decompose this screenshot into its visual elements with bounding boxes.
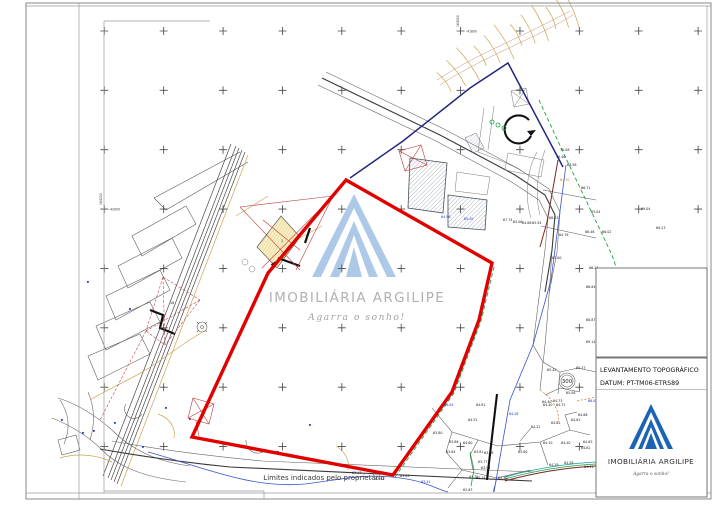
terrain-squiggles [60, 330, 596, 470]
road-hatch-tick [484, 35, 500, 63]
building-hatched-1 [408, 158, 447, 213]
grid-cross [338, 383, 346, 391]
green-limit-2 [539, 100, 616, 267]
elevation-label: 64.72 [556, 403, 565, 407]
parcel-number: 16 [170, 301, 174, 305]
elevation-label: 65.94 [532, 221, 541, 225]
grid-cross [397, 27, 405, 35]
coord-top-vertical: 164300 [456, 15, 460, 27]
road-hatch-tick [531, 5, 548, 41]
elevation-label: 64.41 [584, 465, 593, 469]
elevation-label: 64.28 [549, 463, 558, 467]
elevation-label: 62.63 [463, 488, 472, 492]
road-hatch-tick [555, 0, 568, 28]
grid-cross [160, 205, 168, 213]
elevation-label: 64.04 [444, 403, 453, 407]
tan-road [437, 0, 579, 92]
title-block-tagline: Agarra o sonho! [632, 472, 669, 477]
grid-cross [516, 264, 524, 272]
building-number: 1 [281, 239, 283, 243]
elevation-label: 68.58 [567, 163, 576, 167]
grid-cross [457, 27, 465, 35]
grid-cross [219, 264, 227, 272]
grid-cross [516, 205, 524, 213]
grid-cross [397, 383, 405, 391]
elevation-label: 63.86 [449, 440, 458, 444]
grid-cross [694, 146, 702, 154]
grid-cross [278, 27, 286, 35]
elevation-label: 64.10 [543, 441, 552, 445]
grid-cross [457, 264, 465, 272]
grid-cross [160, 146, 168, 154]
elevation-label: 64.82 [581, 446, 590, 450]
elevation-label: 64.22 [531, 425, 540, 429]
grid-cross [219, 324, 227, 332]
grid-cross [635, 27, 643, 35]
grid-cross [457, 324, 465, 332]
elevation-label: 65.37 [576, 366, 585, 370]
station-300: 300 [559, 373, 575, 389]
elevation-label: 63.80 [433, 431, 442, 435]
elevation-label: 64.26 [509, 412, 518, 416]
station-300-label: 300 [562, 379, 573, 385]
elevation-label: 63.58 [484, 451, 493, 455]
grid-cross [457, 383, 465, 391]
grid-cross [160, 27, 168, 35]
elevation-label: 64.98 [441, 215, 450, 219]
grid-cross [278, 86, 286, 94]
elevation-label: 69.04 [641, 207, 650, 211]
grid-cross [338, 86, 346, 94]
elevation-label: 64.70 [560, 178, 569, 182]
grid-cross [516, 324, 524, 332]
elevation-label: 65.08 [566, 391, 575, 395]
elevation-label: 63.63 [400, 474, 409, 478]
grid-cross [219, 146, 227, 154]
elevation-label: 64.24 [476, 476, 485, 480]
doc-type-label: LEVANTAMENTO TOPOGRÁFICO [600, 365, 699, 374]
grid-cross [694, 27, 702, 35]
elevation-label: 63.84 [446, 450, 455, 454]
elevation-label: 69.23 [656, 226, 665, 230]
grid-cross [278, 205, 286, 213]
grid-cross [219, 383, 227, 391]
terraced-parcels [58, 152, 248, 455]
grid-cross [219, 86, 227, 94]
elevation-label: 67.00 [552, 256, 561, 260]
roundabout-arc [505, 115, 536, 143]
grid-cross [516, 383, 524, 391]
elevation-label: 66.46 [585, 230, 594, 234]
road-hatch-tick [494, 25, 514, 60]
elevation-label: 63.81 [474, 450, 483, 454]
grid-cross [575, 383, 583, 391]
coord-top-horizontal: -41800 [466, 30, 477, 34]
grid-cross [397, 324, 405, 332]
grid-cross [575, 86, 583, 94]
grid-cross [278, 383, 286, 391]
elevation-label: 69.14 [586, 340, 595, 344]
elevation-label: 63.94 [481, 466, 490, 470]
elevation-label: 67.74 [503, 218, 512, 222]
coord-left-horizontal: -42000 [109, 208, 120, 212]
elevation-label: 63.80 [518, 450, 527, 454]
grid-cross [575, 146, 583, 154]
elevation-label: 68.87 [586, 318, 595, 322]
grid-cross [338, 205, 346, 213]
elevation-label: 64.62 [551, 421, 560, 425]
datum-label: DATUM: PT-TM06-ETRS89 [600, 380, 679, 387]
elevation-label: 63.40 [498, 476, 507, 480]
elevation-label: 64.40 [543, 403, 552, 407]
grid-cross [338, 443, 346, 451]
elevation-label: 64.52 [468, 418, 477, 422]
elevation-label: 65.20 [464, 217, 473, 221]
grid-cross [516, 146, 524, 154]
grid-cross [338, 146, 346, 154]
title-block: LEVANTAMENTO TOPOGRÁFICO DATUM: PT-TM06-… [596, 268, 707, 497]
grid-cross [160, 383, 168, 391]
grid-cross [160, 86, 168, 94]
watermark-brand: IMOBILIÁRIA ARGILIPE [269, 289, 445, 306]
grid-cross [278, 443, 286, 451]
grid-cross [219, 27, 227, 35]
grid-cross [397, 86, 405, 94]
grid-cross [694, 205, 702, 213]
elevation-label: 65.42 [547, 368, 556, 372]
elevation-label: 70.08 [560, 148, 569, 152]
grid-cross [575, 205, 583, 213]
elevation-label: 66.84 [586, 285, 595, 289]
elevation-label: 64.86 [578, 413, 587, 417]
navy-boundary [350, 63, 563, 178]
title-block-empty-box [596, 268, 707, 357]
grid-cross [278, 264, 286, 272]
grid-cross [575, 264, 583, 272]
title-block-brand: IMOBILIÁRIA ARGILIPE [608, 457, 694, 466]
elevation-label: 64.40 [561, 441, 570, 445]
elevation-label: 64.26 [564, 461, 573, 465]
grid-cross [694, 86, 702, 94]
grid-cross [397, 264, 405, 272]
elevation-label: 64.76 [559, 233, 568, 237]
grid-cross [338, 27, 346, 35]
road-hatch-tick [446, 60, 465, 86]
elevation-label: 64.63 [583, 440, 592, 444]
elevation-label: 66.02 [602, 230, 611, 234]
grid-cross [635, 86, 643, 94]
streets-bottom-left [52, 392, 534, 482]
elevation-label: 66.71 [581, 186, 590, 190]
point-dots [61, 281, 311, 453]
coord-left-vertical: 164200 [99, 193, 103, 205]
elevation-label: 65.04 [591, 210, 600, 214]
elevation-label: 70.46 [556, 155, 565, 159]
grid-cross [635, 146, 643, 154]
grid-cross [397, 443, 405, 451]
elevation-label: 64.86 [522, 221, 531, 225]
building-hatched-2 [448, 195, 487, 230]
grid-cross [338, 324, 346, 332]
watermark: IMOBILIÁRIA ARGILIPE Agarra o sonho! [269, 194, 445, 323]
topographic-survey-sheet: IMOBILIÁRIA ARGILIPE Agarra o sonho! [0, 0, 715, 506]
owner-limits-note: Limites indicados pelo proprietário [263, 474, 384, 482]
elevation-label: 64.61 [571, 418, 580, 422]
grid-cross [278, 146, 286, 154]
grid-cross [278, 324, 286, 332]
elevation-label: 63.77 [478, 460, 487, 464]
elevation-label: 64.81 [476, 403, 485, 407]
elevation-label: 64.60 [463, 441, 472, 445]
grid-cross [575, 27, 583, 35]
elevation-label: 68.23 [549, 216, 558, 220]
site-plan-drawing: IMOBILIÁRIA ARGILIPE Agarra o sonho! [0, 0, 715, 506]
elevation-label: 63.41 [421, 480, 430, 484]
grid-cross [575, 324, 583, 332]
watermark-tagline: Agarra o sonho! [307, 313, 405, 323]
